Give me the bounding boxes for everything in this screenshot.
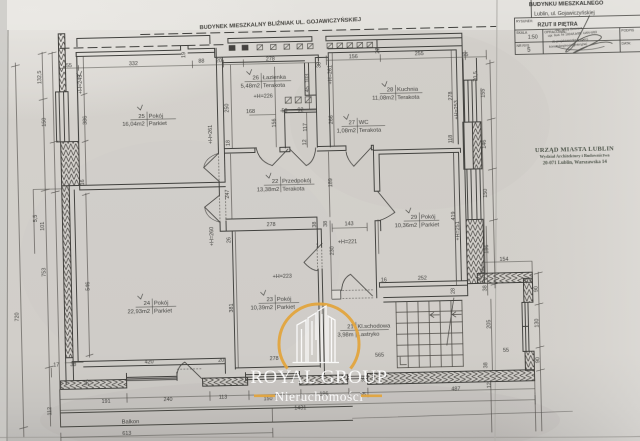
svg-text:Parkiet: Parkiet: [154, 308, 173, 314]
svg-text:+H=260: +H=260: [209, 227, 215, 246]
svg-text:90: 90: [534, 286, 540, 292]
svg-text:Terakota: Terakota: [263, 83, 286, 90]
svg-text:Łazienka: Łazienka: [263, 75, 287, 82]
svg-text:240: 240: [163, 397, 172, 403]
svg-text:3,98m: 3,98m: [337, 332, 353, 338]
svg-text:112: 112: [47, 407, 53, 416]
svg-text:22: 22: [272, 179, 279, 185]
svg-text:27: 27: [349, 120, 356, 126]
svg-text:Lastryko: Lastryko: [358, 332, 380, 338]
svg-text:24: 24: [144, 301, 151, 307]
svg-text:Pokój: Pokój: [277, 297, 292, 303]
svg-text:1:50: 1:50: [528, 35, 538, 41]
svg-text:17: 17: [480, 268, 486, 274]
svg-text:+H=253: +H=253: [454, 100, 460, 119]
svg-text:DATA:: DATA:: [622, 41, 632, 45]
svg-text:103: 103: [305, 74, 311, 83]
svg-text:Parkiet: Parkiet: [149, 121, 168, 127]
svg-text:546: 546: [85, 282, 91, 291]
svg-text:17: 17: [53, 362, 59, 368]
svg-text:+H=245: +H=245: [78, 75, 84, 94]
svg-text:26: 26: [226, 237, 232, 243]
svg-text:ROYAL GROUP: ROYAL GROUP: [250, 367, 387, 388]
svg-text:+H=221: +H=221: [338, 239, 357, 245]
svg-text:19: 19: [181, 52, 187, 58]
svg-text:250: 250: [224, 104, 230, 113]
svg-text:753: 753: [42, 268, 48, 277]
svg-text:+H=226: +H=226: [254, 94, 273, 100]
svg-text:156: 156: [349, 54, 358, 60]
svg-text:28: 28: [387, 87, 394, 93]
svg-text:Nieruchomości: Nieruchomości: [275, 389, 364, 404]
svg-text:156: 156: [272, 118, 278, 127]
svg-text:38: 38: [483, 362, 489, 368]
svg-text:SKALA: SKALA: [516, 31, 528, 35]
svg-text:278: 278: [270, 356, 279, 362]
svg-text:613: 613: [122, 431, 131, 437]
svg-text:150: 150: [483, 189, 489, 198]
svg-text:Kl.schodowa: Kl.schodowa: [357, 323, 391, 330]
svg-text:1,08m2: 1,08m2: [337, 128, 356, 134]
svg-text:29: 29: [411, 215, 418, 221]
svg-text:487: 487: [451, 386, 460, 392]
svg-text:252: 252: [418, 276, 427, 282]
svg-text:55: 55: [85, 379, 91, 385]
svg-text:386: 386: [83, 116, 89, 125]
svg-text:RYSUNEK:: RYSUNEK:: [516, 19, 533, 23]
svg-text:118: 118: [448, 135, 454, 144]
svg-text:720: 720: [15, 312, 21, 321]
svg-text:23: 23: [267, 297, 274, 303]
svg-text:Parkiet: Parkiet: [421, 222, 440, 228]
svg-text:22,93m2: 22,93m2: [127, 309, 150, 316]
svg-text:+H=223: +H=223: [273, 274, 292, 280]
svg-text:20: 20: [216, 58, 222, 64]
svg-text:101: 101: [40, 222, 46, 231]
svg-text:88: 88: [198, 59, 204, 65]
svg-text:278: 278: [448, 91, 454, 100]
svg-text:55: 55: [462, 52, 468, 58]
svg-text:16,04m2: 16,04m2: [122, 121, 145, 128]
svg-text:155: 155: [481, 89, 487, 98]
svg-text:191: 191: [102, 399, 111, 405]
svg-text:Balkon: Balkon: [122, 419, 140, 425]
svg-text:278: 278: [266, 56, 275, 62]
svg-text:117: 117: [303, 123, 309, 132]
svg-text:Pokój: Pokój: [154, 300, 169, 306]
svg-text:20: 20: [218, 358, 224, 364]
svg-text:5,5: 5,5: [33, 215, 39, 223]
svg-text:154: 154: [499, 257, 508, 263]
svg-text:10,36m2: 10,36m2: [395, 223, 418, 230]
svg-text:PODPIS: PODPIS: [621, 28, 635, 32]
svg-text:+H=251: +H=251: [455, 221, 461, 240]
svg-text:38: 38: [323, 221, 329, 227]
svg-text:230: 230: [330, 246, 336, 255]
svg-text:38: 38: [483, 285, 489, 291]
svg-text:5,48m2: 5,48m2: [241, 83, 260, 89]
svg-text:28: 28: [451, 288, 457, 294]
svg-text:Kuchnia: Kuchnia: [397, 87, 419, 93]
svg-text:332: 332: [129, 61, 138, 67]
svg-text:419: 419: [451, 211, 457, 220]
svg-text:266: 266: [329, 115, 335, 124]
svg-text:168: 168: [246, 109, 255, 115]
svg-text:+H=261: +H=261: [327, 65, 333, 84]
svg-text:12: 12: [487, 382, 493, 388]
svg-text:565: 565: [375, 353, 384, 359]
svg-text:278: 278: [267, 222, 276, 228]
svg-text:Pokój: Pokój: [421, 214, 436, 220]
svg-text:11,08m2: 11,08m2: [372, 95, 394, 102]
svg-text:70,5: 70,5: [473, 71, 479, 82]
svg-text:55: 55: [503, 348, 509, 354]
svg-text:22: 22: [375, 48, 381, 54]
svg-text:92: 92: [297, 107, 303, 113]
svg-text:38: 38: [70, 362, 76, 368]
svg-text:247: 247: [225, 190, 231, 199]
svg-text:13,38m2: 13,38m2: [257, 187, 280, 194]
svg-text:113: 113: [219, 395, 228, 401]
svg-text:146: 146: [482, 140, 488, 149]
svg-text:255: 255: [415, 51, 424, 57]
svg-text:+H=261: +H=261: [208, 125, 214, 144]
svg-text:55: 55: [66, 63, 72, 69]
svg-text:WC: WC: [359, 120, 369, 126]
svg-text:Parkiet: Parkiet: [277, 305, 296, 311]
svg-text:143: 143: [345, 221, 354, 227]
svg-text:Przedpokój: Przedpokój: [282, 178, 311, 185]
svg-text:18: 18: [226, 140, 232, 146]
svg-text:16: 16: [80, 179, 86, 185]
svg-text:1431: 1431: [294, 405, 306, 411]
svg-text:58: 58: [281, 108, 287, 114]
svg-text:10,39m2: 10,39m2: [250, 305, 273, 312]
svg-text:16: 16: [381, 277, 387, 283]
svg-text:420: 420: [145, 359, 154, 365]
svg-text:186: 186: [484, 245, 490, 254]
svg-text:150: 150: [42, 118, 48, 127]
svg-text:Terakota: Terakota: [397, 95, 420, 102]
svg-text:189: 189: [328, 178, 334, 187]
svg-text:Terakota: Terakota: [359, 128, 382, 135]
svg-text:381: 381: [229, 303, 235, 312]
svg-text:132,5: 132,5: [37, 70, 43, 84]
svg-text:130: 130: [534, 319, 540, 328]
svg-text:90: 90: [535, 357, 541, 363]
svg-text:Terakota: Terakota: [282, 186, 305, 193]
svg-text:45: 45: [305, 86, 311, 92]
svg-text:205: 205: [486, 320, 492, 329]
svg-text:25: 25: [138, 114, 145, 120]
svg-text:38: 38: [316, 62, 322, 68]
svg-text:38: 38: [312, 222, 318, 228]
svg-text:26: 26: [252, 75, 259, 81]
svg-text:12: 12: [302, 139, 308, 145]
